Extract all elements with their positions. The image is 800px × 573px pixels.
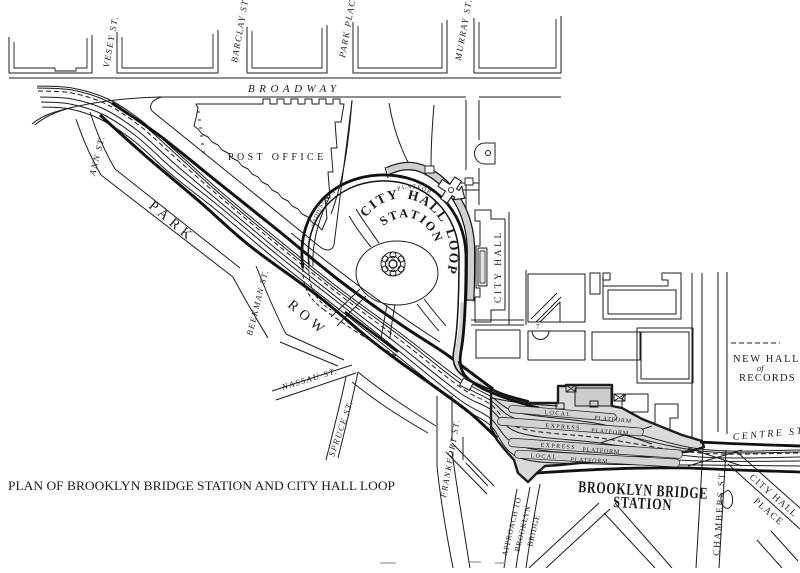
- svg-text:NEW HALL: NEW HALL: [733, 354, 800, 365]
- svg-text:STATION: STATION: [613, 494, 673, 514]
- svg-text:CITY HALL: CITY HALL: [494, 230, 504, 303]
- svg-text:BROADWAY: BROADWAY: [248, 83, 341, 95]
- svg-text:7: 7: [536, 323, 540, 331]
- svg-text:RECORDS: RECORDS: [739, 373, 796, 384]
- svg-text:POST OFFICE: POST OFFICE: [228, 152, 327, 163]
- svg-text:PLAN OF BROOKLYN BRIDGE STATIO: PLAN OF BROOKLYN BRIDGE STATION AND CITY…: [8, 478, 395, 493]
